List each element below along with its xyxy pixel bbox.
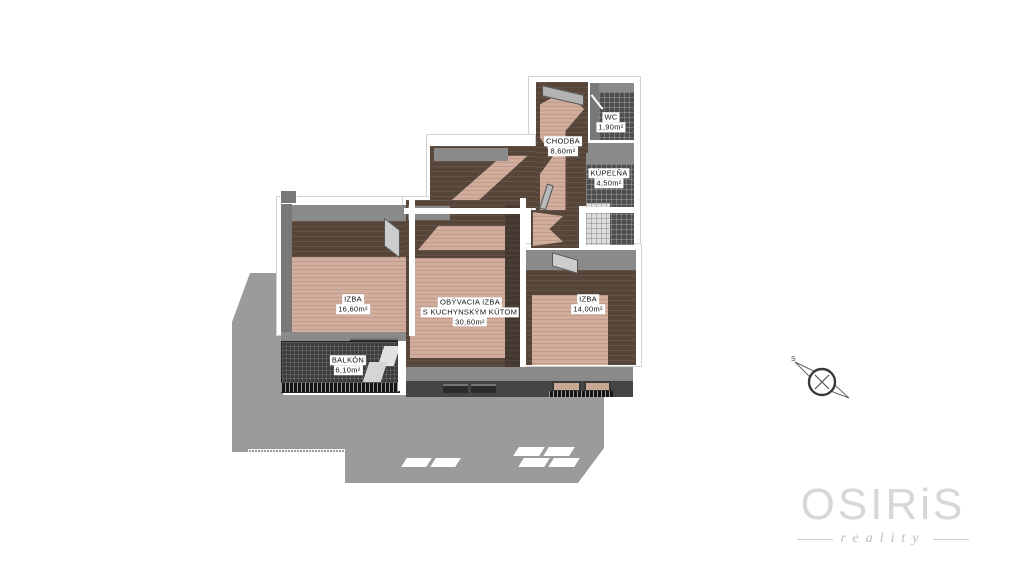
corridor-stub-floor: [531, 210, 579, 248]
brand-name: OSIRiS: [797, 483, 969, 527]
room-name: IZBA: [577, 294, 599, 304]
brand-tagline: reality: [840, 531, 925, 547]
tagline-rule-right: [933, 539, 969, 540]
room-area: 14,00m²: [571, 304, 605, 314]
watermark-logo: OSIRiS reality: [797, 483, 969, 547]
wall-gap-left-living: [409, 198, 415, 336]
stub-bathroom-wall: [579, 206, 586, 248]
room-obyvacia: [406, 200, 522, 367]
wall-gap-living-right: [520, 198, 526, 367]
wall-gap-corridor-living: [404, 208, 524, 214]
room-kupelna: [586, 153, 634, 245]
room-area: 1,90m²: [596, 122, 625, 132]
facade-window-slit: [443, 384, 468, 393]
room-area: 6,10m²: [333, 365, 362, 375]
label-obyvacia: OBÝVACIA IZBA S KUCHYNSKÝM KÚTOM 30,60m²: [421, 297, 519, 326]
kupelna-partition-wall: [583, 207, 634, 213]
floor-plan-render: CHODBA 8,60m² WC 1,90m² KÚPEĽŇA 4,50m² I…: [0, 0, 1011, 570]
room-name: CHODBA: [544, 136, 582, 146]
label-balkon: BALKÓN 6,10m²: [330, 355, 366, 375]
room-area: 30,60m²: [453, 317, 487, 327]
room-area: 4,50m²: [594, 178, 623, 188]
tagline-rule-left: [797, 539, 833, 540]
label-kupelna: KÚPEĽŇA 4,50m²: [588, 168, 629, 188]
izba-right-wall-top: [526, 250, 636, 270]
kupelna-wall-top: [586, 153, 634, 164]
balcony-railing-hatch: [281, 383, 398, 392]
chimney-nub: [280, 190, 297, 204]
corridor-stub-path: [533, 212, 563, 246]
room-area: 16,60m²: [336, 304, 370, 314]
brand-tagline-row: reality: [797, 531, 969, 547]
compass-icon: S: [789, 352, 853, 402]
room-name-2: S KUCHYNSKÝM KÚTOM: [421, 307, 519, 317]
room-name: KÚPEĽŇA: [588, 168, 629, 178]
balcony-side-wall: [398, 341, 406, 391]
room-name: OBÝVACIA IZBA: [438, 297, 502, 307]
izba-left-wall-top: [292, 205, 408, 221]
room-name: WC: [602, 112, 619, 122]
svg-text:S: S: [791, 356, 796, 363]
room-area: 8,60m²: [548, 146, 577, 156]
corridor-wall-top: [434, 148, 508, 161]
room-name: BALKÓN: [330, 355, 366, 365]
label-izba-right: IZBA 14,00m²: [571, 294, 605, 314]
wc-wall-top: [599, 83, 634, 92]
label-chodba: CHODBA 8,60m²: [544, 136, 582, 156]
facade-wall-band-south: [406, 367, 633, 381]
izba-left-wall-side: [281, 200, 292, 332]
label-wc: WC 1,90m²: [596, 112, 625, 132]
room-name: IZBA: [342, 294, 364, 304]
platform-hatch-strip: [248, 449, 345, 458]
label-izba-left: IZBA 16,60m²: [336, 294, 370, 314]
facade-window-slit: [471, 384, 496, 393]
facade-railing-hatch: [549, 391, 613, 397]
